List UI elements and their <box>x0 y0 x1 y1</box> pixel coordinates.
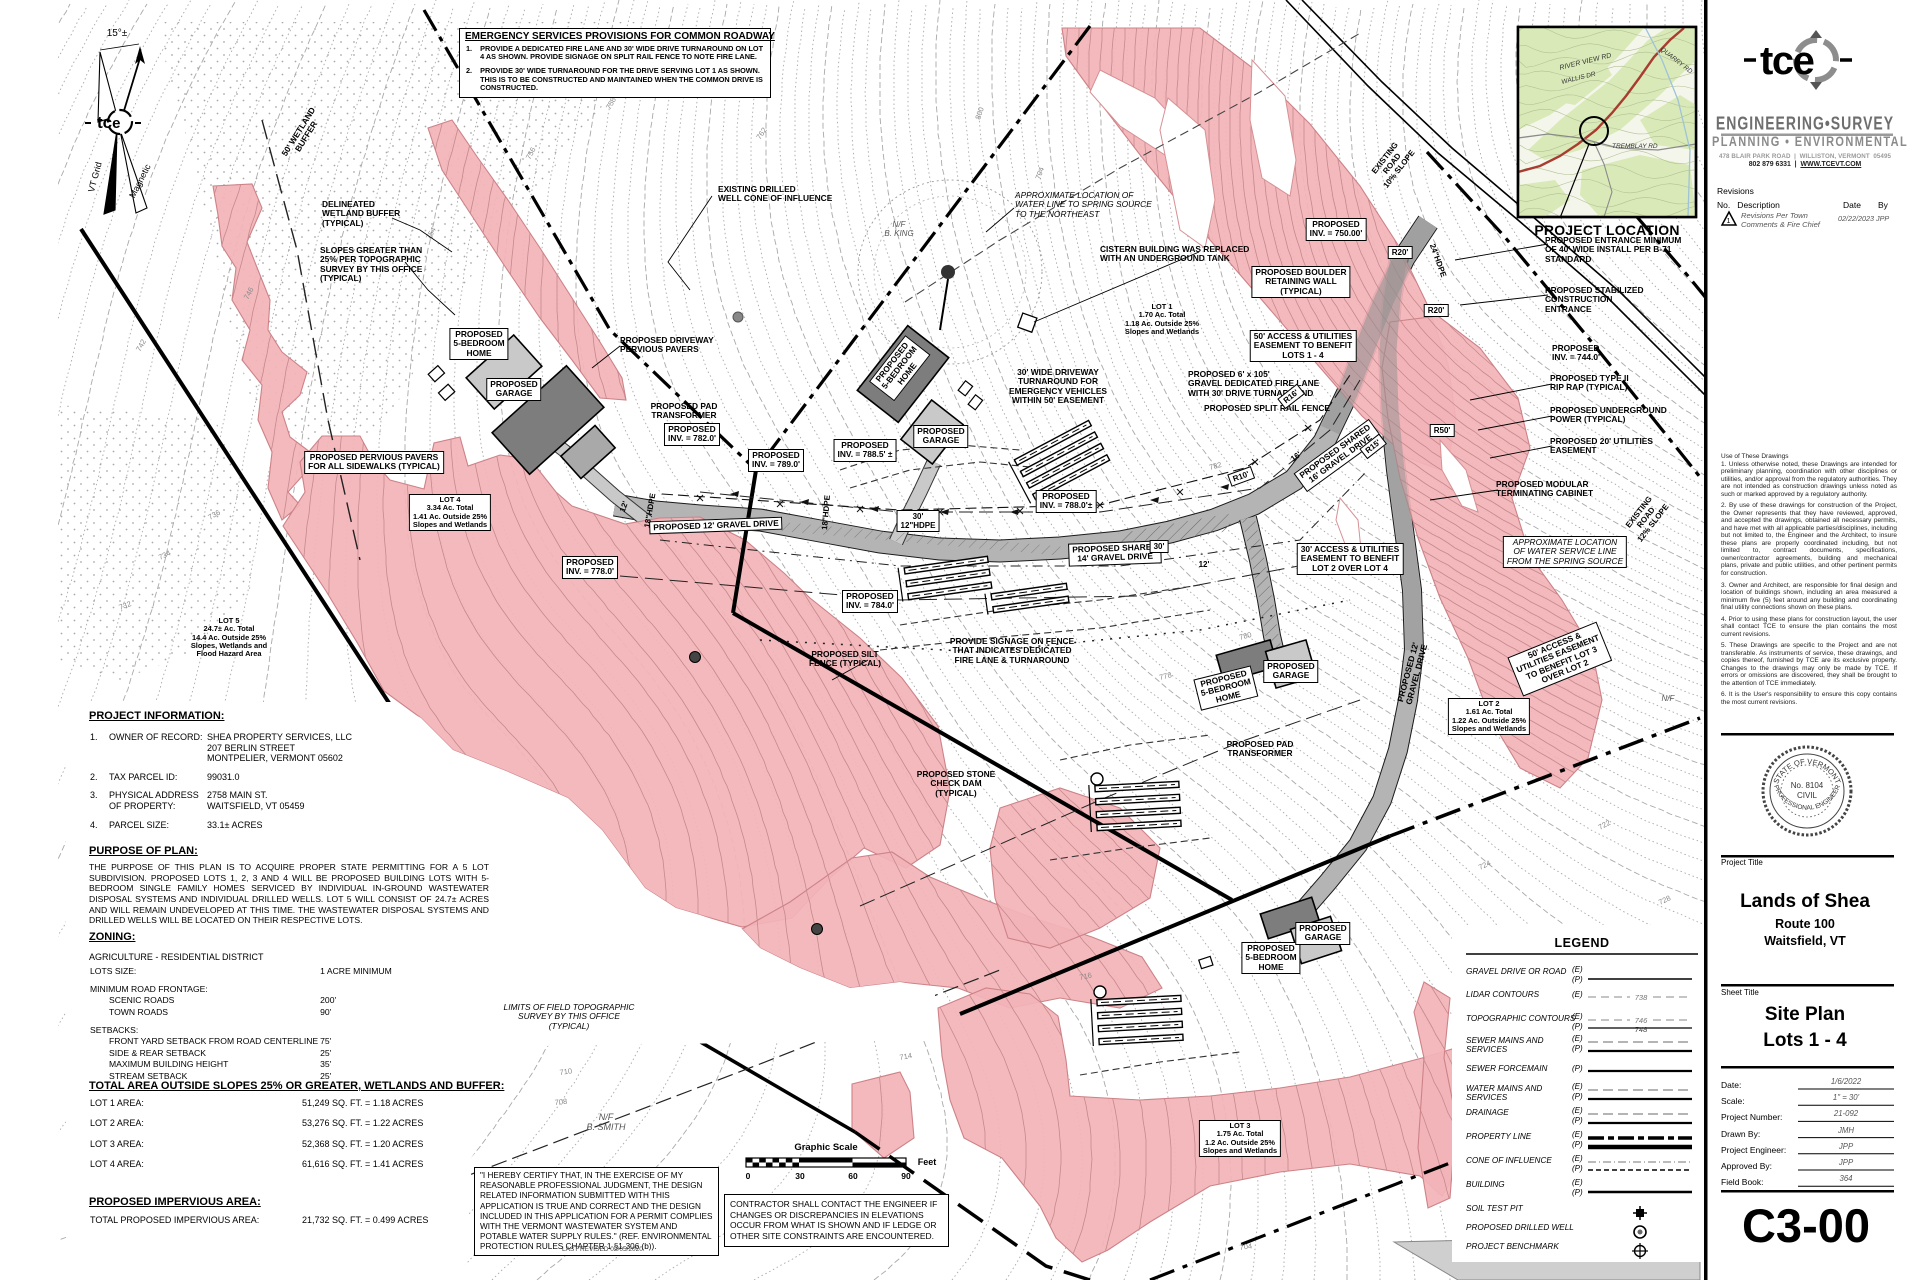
svg-text:746: 746 <box>1635 1016 1648 1025</box>
svg-text:738: 738 <box>1635 993 1648 1002</box>
svg-text:748: 748 <box>1635 1025 1648 1034</box>
